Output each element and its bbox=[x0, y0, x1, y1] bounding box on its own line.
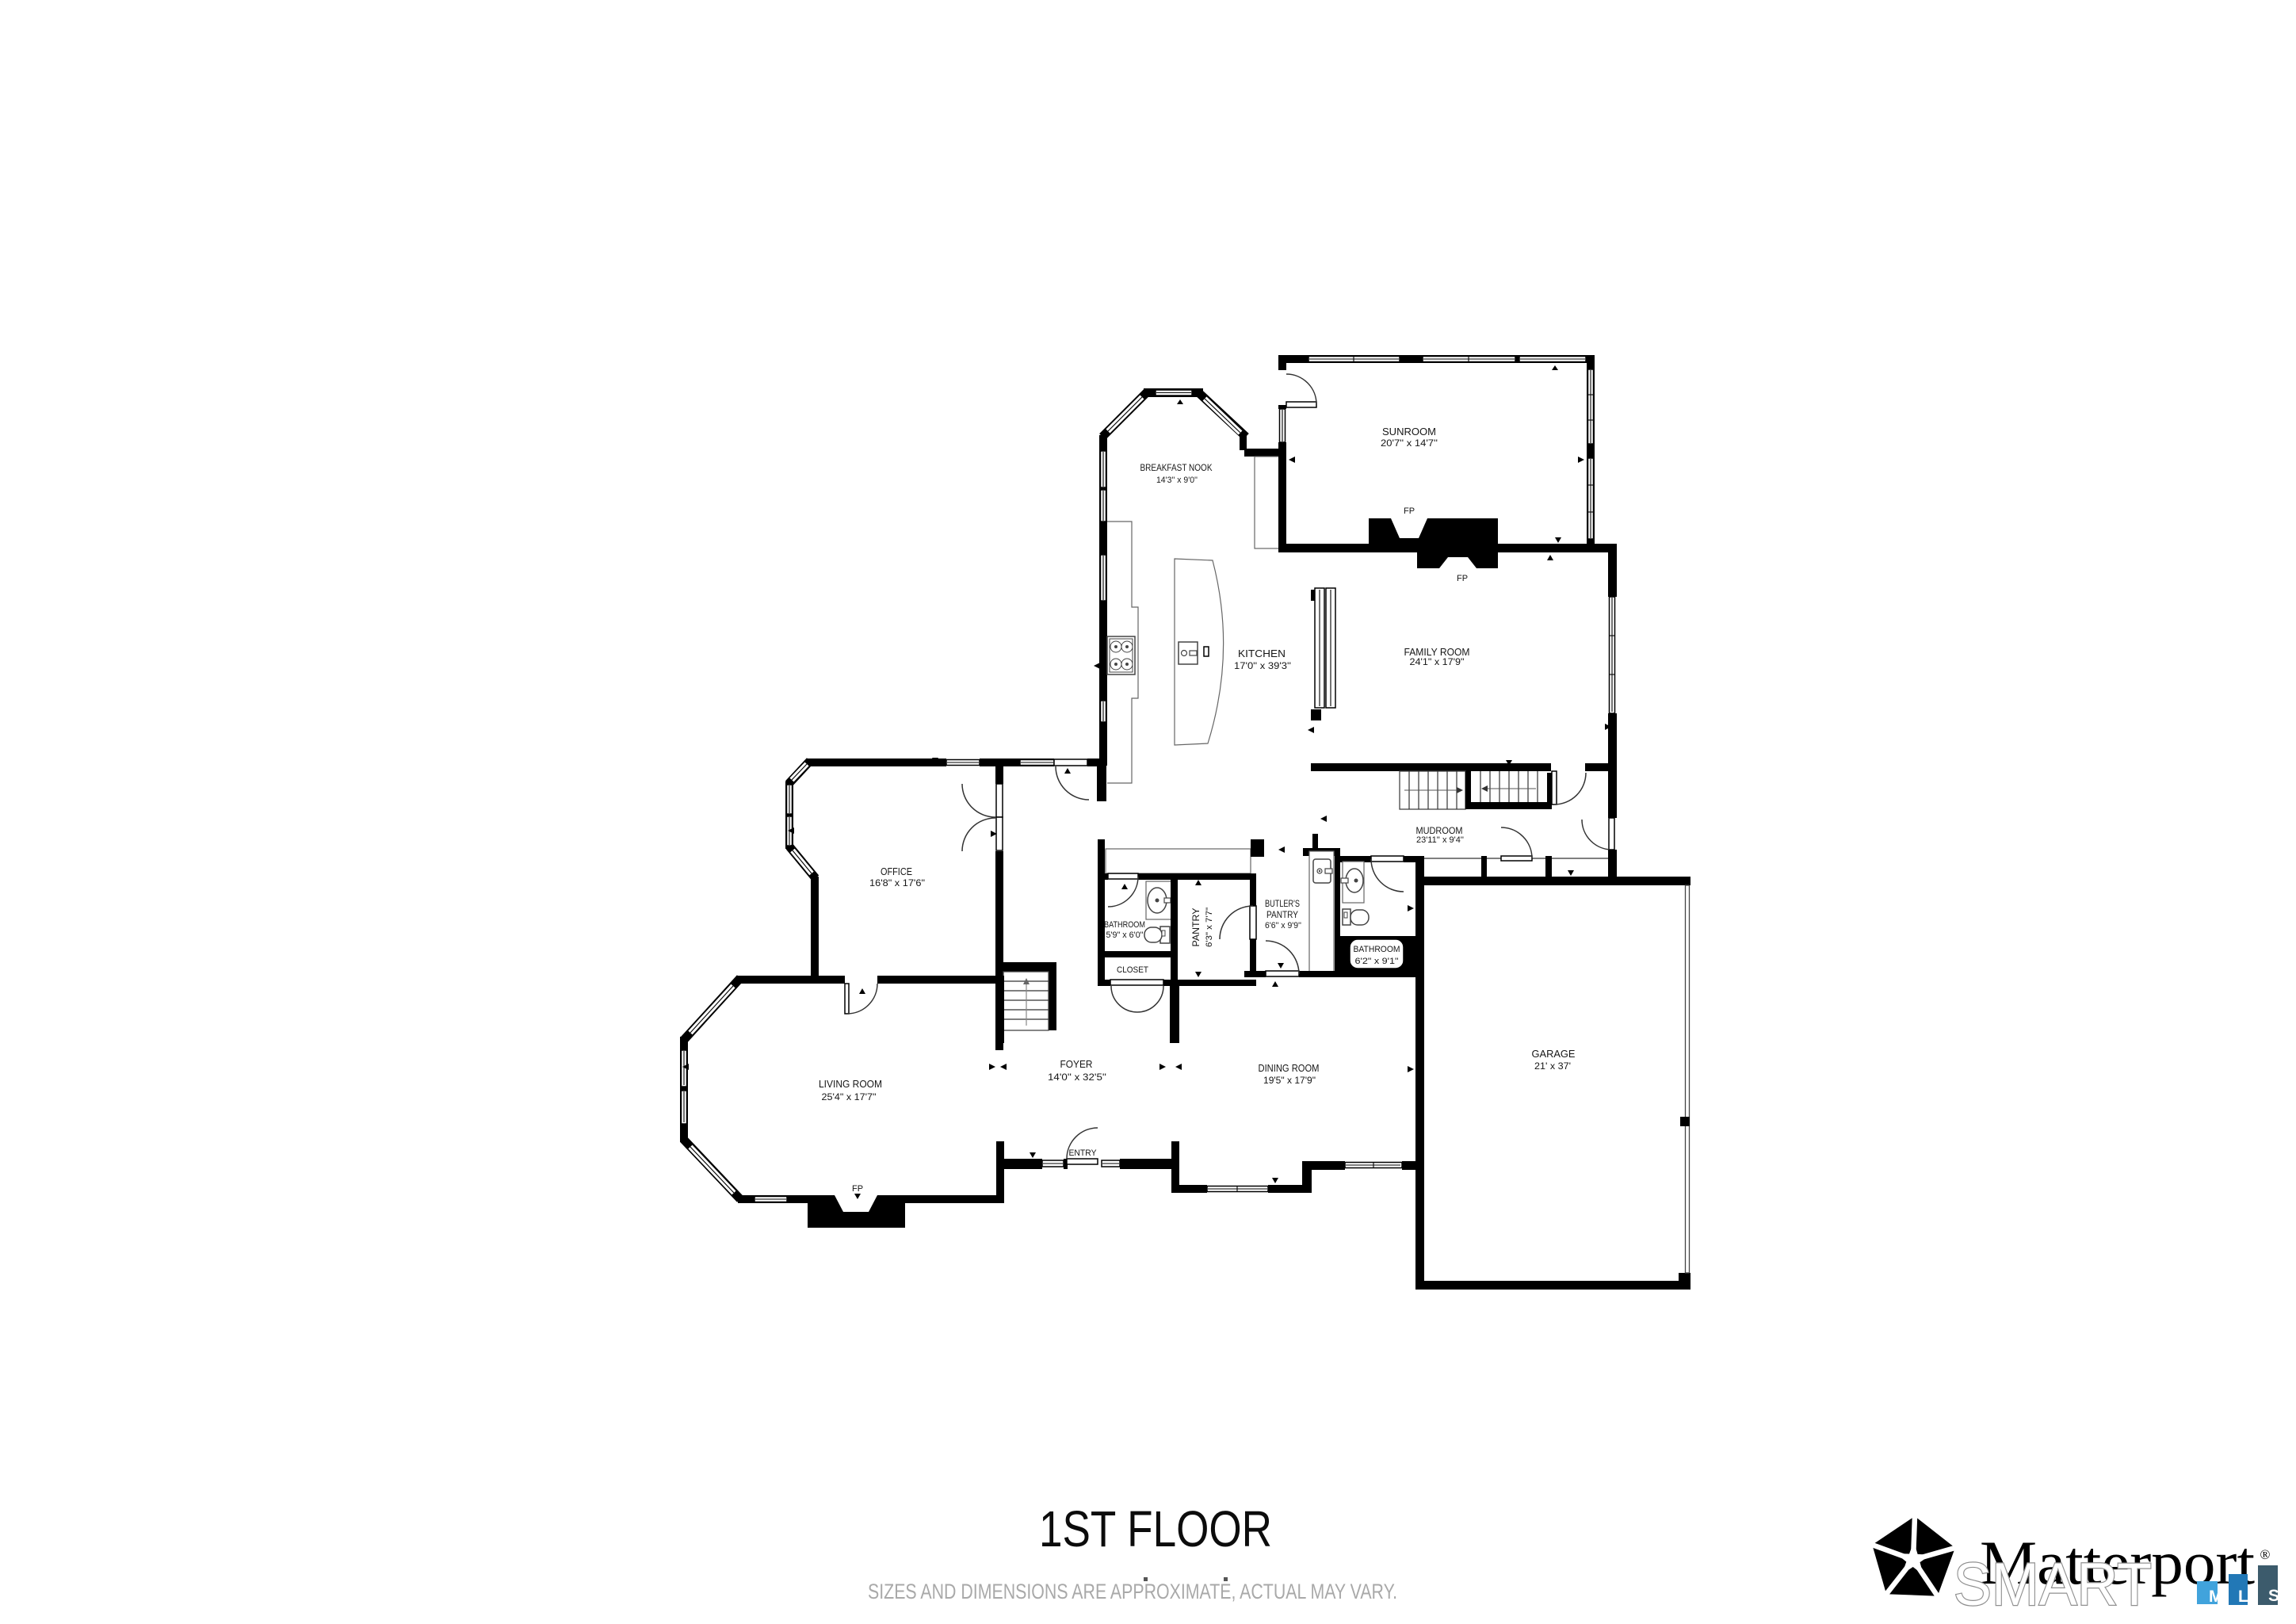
svg-text:BATHROOM: BATHROOM bbox=[1354, 945, 1400, 954]
svg-text:®: ® bbox=[2260, 1547, 2271, 1562]
svg-text:25'4" x 17'7": 25'4" x 17'7" bbox=[822, 1091, 877, 1102]
svg-text:FP: FP bbox=[852, 1184, 863, 1194]
svg-text:6'3" x 7'7": 6'3" x 7'7" bbox=[1205, 908, 1214, 947]
svg-text:6'6'' x 9'9'': 6'6'' x 9'9'' bbox=[1265, 921, 1301, 930]
svg-text:5'9" x 6'0": 5'9" x 6'0" bbox=[1106, 930, 1144, 940]
svg-text:FP: FP bbox=[1404, 506, 1415, 516]
svg-text:DINING ROOM: DINING ROOM bbox=[1259, 1062, 1320, 1074]
svg-text:S: S bbox=[2268, 1587, 2279, 1605]
svg-text:PANTRY: PANTRY bbox=[1266, 909, 1298, 920]
svg-text:21' x 37': 21' x 37' bbox=[1534, 1060, 1571, 1072]
svg-text:6'2" x 9'1": 6'2" x 9'1" bbox=[1355, 957, 1399, 966]
svg-text:14'0'' x 32'5'': 14'0'' x 32'5'' bbox=[1048, 1072, 1106, 1083]
svg-text:1ST FLOOR: 1ST FLOOR bbox=[1039, 1500, 1272, 1557]
svg-text:L: L bbox=[2238, 1588, 2248, 1606]
svg-text:BATHROOM: BATHROOM bbox=[1104, 920, 1145, 930]
svg-text:SIZES AND DIMENSIONS ARE APPRO: SIZES AND DIMENSIONS ARE APPROXIMATE, AC… bbox=[868, 1580, 1397, 1603]
svg-text:SMART: SMART bbox=[1954, 1551, 2152, 1618]
svg-text:KITCHEN: KITCHEN bbox=[1238, 648, 1286, 659]
svg-text:SUNROOM: SUNROOM bbox=[1382, 426, 1436, 438]
svg-text:M: M bbox=[2209, 1588, 2223, 1606]
svg-text:BUTLER'S: BUTLER'S bbox=[1265, 898, 1300, 909]
svg-text:14'3'' x 9'0'': 14'3'' x 9'0'' bbox=[1156, 476, 1198, 485]
svg-text:OFFICE: OFFICE bbox=[881, 865, 912, 877]
svg-text:19'5" x 17'9": 19'5" x 17'9" bbox=[1263, 1075, 1316, 1086]
svg-text:24'1" x 17'9": 24'1" x 17'9" bbox=[1410, 656, 1465, 667]
svg-text:PANTRY: PANTRY bbox=[1190, 908, 1201, 947]
svg-text:FOYER: FOYER bbox=[1060, 1058, 1093, 1070]
svg-text:20'7'' x 14'7'': 20'7'' x 14'7'' bbox=[1381, 438, 1438, 449]
svg-text:FP: FP bbox=[1457, 574, 1468, 583]
svg-text:16'8" x 17'6": 16'8" x 17'6" bbox=[869, 877, 925, 888]
svg-text:GARAGE: GARAGE bbox=[1532, 1048, 1576, 1060]
svg-text:CLOSET: CLOSET bbox=[1117, 965, 1148, 975]
svg-text:23'11'' x 9'4'': 23'11'' x 9'4'' bbox=[1416, 835, 1464, 845]
svg-text:MUDROOM: MUDROOM bbox=[1416, 825, 1463, 836]
svg-text:BREAKFAST NOOK: BREAKFAST NOOK bbox=[1140, 462, 1213, 473]
svg-text:17'0'' x 39'3'': 17'0'' x 39'3'' bbox=[1234, 660, 1291, 671]
svg-text:LIVING ROOM: LIVING ROOM bbox=[819, 1078, 882, 1090]
svg-text:ENTRY: ENTRY bbox=[1069, 1148, 1098, 1158]
